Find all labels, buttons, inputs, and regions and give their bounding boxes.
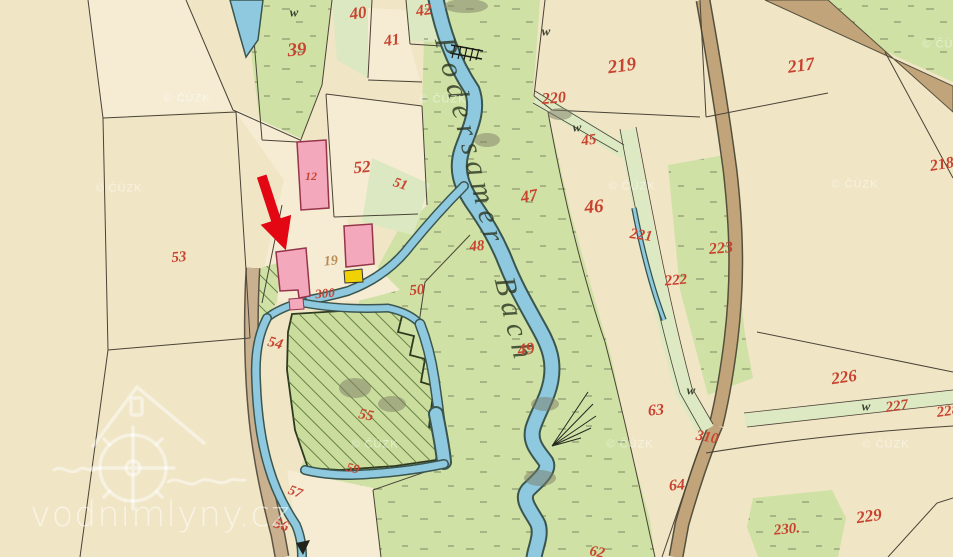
building-19 xyxy=(344,224,374,267)
parcel-number-39: 39 xyxy=(287,40,308,61)
parcel-number-227: 227 xyxy=(885,398,909,416)
parcel-number-41: 41 xyxy=(383,32,401,50)
building-shed-yellow xyxy=(344,269,363,283)
parcel-number-47: 47 xyxy=(519,186,539,206)
parcel-number-63: 63 xyxy=(647,402,664,419)
copyright-mark: © ČÚZK xyxy=(862,440,909,451)
parcel-number-219: 219 xyxy=(607,55,638,78)
cadastral-map xyxy=(0,0,953,557)
copyright-mark: © ČÚZK xyxy=(419,95,466,106)
parcel-number-55: 55 xyxy=(357,407,375,425)
parcel-number-42: 42 xyxy=(415,2,433,20)
copyright-mark: © ČÚZK xyxy=(351,440,398,451)
meadow-mark: w xyxy=(542,25,551,38)
parcel-number-19: 19 xyxy=(323,254,338,269)
parcel-number-50: 50 xyxy=(409,283,425,299)
parcel-number-40: 40 xyxy=(348,3,367,22)
copyright-mark: © ČÚZK xyxy=(922,40,953,51)
parcel-number-226: 226 xyxy=(830,367,858,387)
parcel-number-64: 64 xyxy=(668,477,685,494)
meadow-mark: w xyxy=(862,400,871,413)
copyright-mark: © ČÚZK xyxy=(606,440,653,451)
parcel-number-223: 223 xyxy=(708,240,733,258)
parcel-number-229: 229 xyxy=(855,506,883,526)
parcel-number-221: 221 xyxy=(629,227,653,245)
parcel-number-59: 59 xyxy=(345,460,360,475)
parcel-number-53: 53 xyxy=(171,250,187,266)
parcel-number-220: 220 xyxy=(541,90,566,108)
parcel-number-12: 12 xyxy=(305,170,317,182)
building-fragment xyxy=(289,298,304,310)
copyright-mark: © ČÚZK xyxy=(608,182,655,193)
parcel-number-45: 45 xyxy=(581,133,598,150)
parcel-number-46: 46 xyxy=(584,197,605,218)
copyright-mark: © ČÚZK xyxy=(831,180,878,191)
parcel-number-300: 300 xyxy=(315,286,336,301)
parcel-number-217: 217 xyxy=(786,54,815,76)
parcel-number-62: 62 xyxy=(588,544,606,557)
copyright-mark: © ČÚZK xyxy=(163,94,210,105)
building-mill xyxy=(276,248,310,298)
meadow-mark: w xyxy=(573,121,582,134)
parcel-number-49: 49 xyxy=(516,339,535,358)
parcel-number-230.: 230. xyxy=(773,521,800,538)
site-watermark: vodnimlyny.cz xyxy=(30,498,290,533)
parcel-number-228: 228 xyxy=(936,403,953,421)
meadow-mark: w xyxy=(687,384,696,397)
map-canvas[interactable]: Podersamer Bach 394041422192172182204546… xyxy=(0,0,953,557)
parcel-number-48: 48 xyxy=(469,239,485,255)
parcel-number-222: 222 xyxy=(664,273,688,290)
parcel-number-52: 52 xyxy=(353,158,371,176)
meadow-mark: w xyxy=(290,6,299,19)
copyright-mark: © ČÚZK xyxy=(95,184,142,195)
